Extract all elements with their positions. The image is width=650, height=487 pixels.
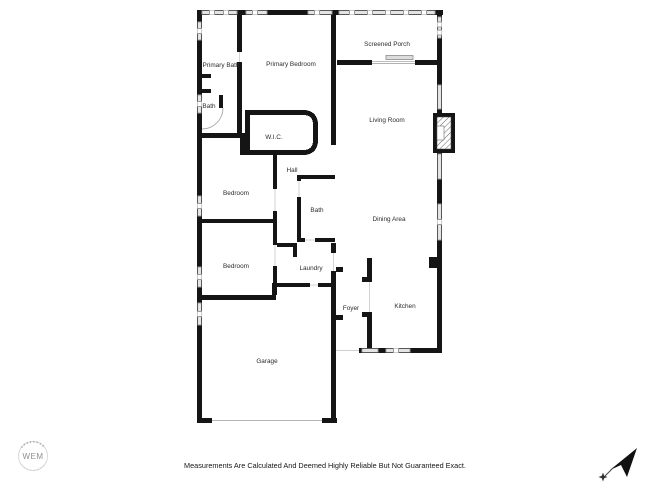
room-label-laundry: Laundry xyxy=(299,265,323,272)
room-label-screened-porch: Screened Porch xyxy=(364,41,410,48)
wem-logo: WEM xyxy=(19,442,48,471)
floor-plan-svg: Screened Porch Primary Bath Primary Bedr… xyxy=(0,0,650,487)
north-star-icon xyxy=(599,473,608,482)
room-label-hall: Hall xyxy=(286,167,297,174)
north-compass-icon xyxy=(599,448,638,482)
room-label-garage: Garage xyxy=(256,358,278,365)
room-label-kitchen: Kitchen xyxy=(394,303,416,310)
wic-wall xyxy=(248,113,316,153)
room-label-foyer: Foyer xyxy=(343,305,360,312)
room-label-bedroom-1: Bedroom xyxy=(223,190,249,197)
walls xyxy=(197,10,443,423)
disclaimer-text: Measurements Are Calculated And Deemed H… xyxy=(184,461,466,470)
room-label-primary-bath: Primary Bath xyxy=(203,62,240,69)
room-label-dining-area: Dining Area xyxy=(372,216,405,223)
room-label-hall-bath: Bath xyxy=(310,207,324,214)
wem-logo-text: WEM xyxy=(22,452,43,461)
room-label-living-room: Living Room xyxy=(369,117,405,124)
room-labels: Screened Porch Primary Bath Primary Bedr… xyxy=(202,41,416,365)
fireplace xyxy=(433,113,455,153)
room-label-primary-bedroom: Primary Bedroom xyxy=(266,61,316,68)
room-label-bedroom-2: Bedroom xyxy=(223,263,249,270)
bath-door-arc xyxy=(202,108,223,129)
room-label-wic: W.I.C. xyxy=(265,134,283,141)
floor-plan-page: Screened Porch Primary Bath Primary Bedr… xyxy=(0,0,650,487)
sliding-door xyxy=(372,56,415,64)
room-label-bath: Bath xyxy=(202,103,216,110)
